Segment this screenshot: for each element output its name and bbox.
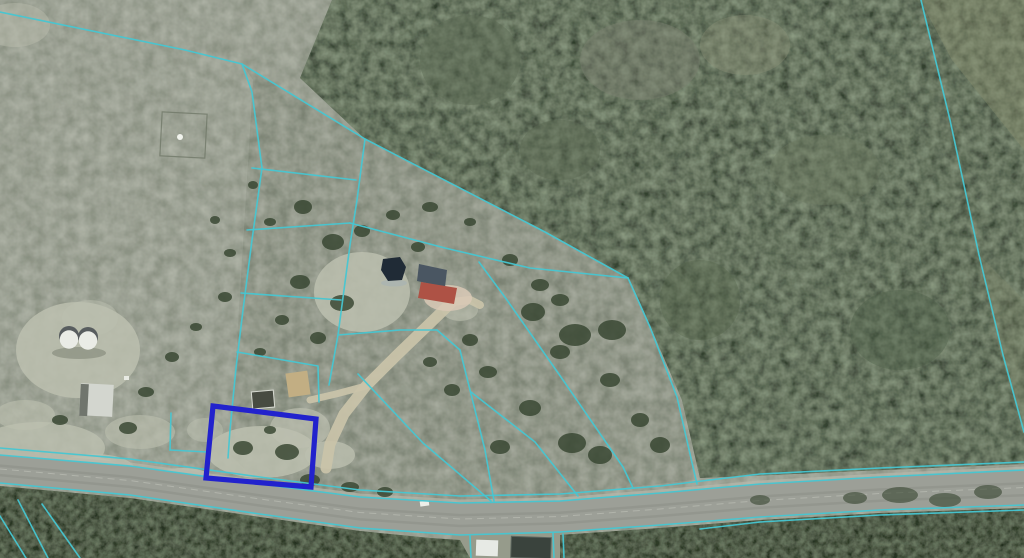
- bush: [264, 218, 276, 226]
- bush: [631, 413, 649, 427]
- bush: [233, 441, 253, 455]
- sand-patch: [105, 415, 175, 449]
- bush: [138, 387, 154, 397]
- tree-shadow: [843, 492, 867, 504]
- bush: [264, 426, 276, 434]
- bush: [165, 352, 179, 362]
- bush: [551, 294, 569, 306]
- building: [476, 540, 499, 557]
- bush: [422, 202, 438, 212]
- bush: [224, 249, 236, 257]
- bush: [650, 437, 670, 453]
- bush: [322, 234, 344, 250]
- bush: [444, 384, 460, 396]
- cadastral-boundary-line: [553, 533, 554, 558]
- building: [285, 371, 310, 398]
- bush: [519, 400, 541, 416]
- forest-patch: [770, 135, 880, 205]
- bush: [290, 275, 310, 289]
- bush: [464, 218, 476, 226]
- map-viewport[interactable]: [0, 0, 1024, 558]
- bush: [531, 279, 549, 291]
- bush: [588, 446, 612, 464]
- building: [79, 384, 89, 416]
- storage-tank: [60, 330, 78, 348]
- tree-shadow: [974, 485, 1002, 499]
- aerial-map[interactable]: [0, 0, 1024, 558]
- bush: [559, 324, 591, 346]
- bush: [341, 482, 359, 492]
- forest-patch: [850, 290, 950, 370]
- tree-shadow: [929, 493, 961, 507]
- forest-patch: [420, 15, 520, 105]
- bush: [248, 181, 258, 189]
- bush: [598, 320, 626, 340]
- bush: [210, 216, 220, 224]
- bush: [600, 373, 620, 387]
- bush: [423, 357, 437, 367]
- cadastral-boundary-line: [563, 534, 564, 558]
- building: [124, 376, 129, 380]
- bush: [550, 345, 570, 359]
- bush: [275, 315, 289, 325]
- forest-patch: [580, 20, 700, 100]
- bush: [490, 440, 510, 454]
- bush: [411, 242, 425, 252]
- forest-patch: [660, 260, 740, 340]
- sand-patch: [187, 418, 223, 442]
- storage-tank: [79, 331, 97, 349]
- tree-shadow: [750, 495, 770, 505]
- bush: [119, 422, 137, 434]
- bush: [558, 433, 586, 453]
- bush: [275, 444, 299, 460]
- cadastral-boundary-line: [470, 536, 471, 558]
- tree-shadow: [882, 487, 918, 503]
- bush: [521, 303, 545, 321]
- building: [251, 390, 274, 409]
- cadastral-boundary-line: [170, 413, 171, 450]
- building: [511, 536, 552, 558]
- tank-shadow: [52, 347, 106, 359]
- bush: [190, 323, 202, 331]
- bush: [462, 334, 478, 346]
- forest-patch: [700, 15, 790, 75]
- small-white-object: [177, 134, 183, 140]
- bush: [294, 200, 312, 214]
- bush: [386, 210, 400, 220]
- bush: [52, 415, 68, 425]
- bush: [218, 292, 232, 302]
- bush: [310, 332, 326, 344]
- forest-patch: [520, 120, 600, 180]
- bush: [479, 366, 497, 378]
